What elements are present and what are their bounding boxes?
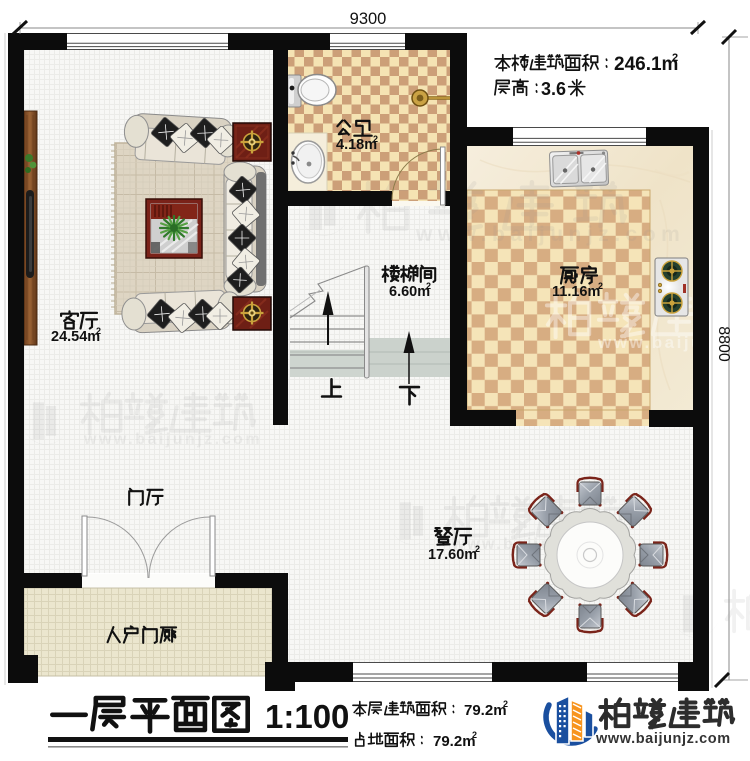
svg-text:2: 2 — [598, 281, 603, 291]
svg-text:8800: 8800 — [715, 326, 732, 362]
svg-text:6.60m: 6.60m — [389, 284, 430, 300]
svg-text:1:100: 1:100 — [265, 698, 349, 735]
svg-text:www.baijunjz.com: www.baijunjz.com — [595, 731, 731, 747]
svg-text:9300: 9300 — [350, 10, 387, 28]
svg-text:3.6: 3.6 — [541, 79, 566, 99]
svg-text:2: 2 — [426, 281, 431, 291]
svg-text:www.baijunjz.com: www.baijunjz.com — [83, 431, 262, 448]
svg-text:24.54m: 24.54m — [51, 329, 100, 345]
svg-text:2: 2 — [475, 544, 480, 554]
svg-text:2: 2 — [503, 699, 508, 709]
svg-text:79.2m: 79.2m — [464, 702, 507, 719]
svg-text:246.1m: 246.1m — [614, 54, 678, 75]
svg-text:2: 2 — [672, 52, 678, 64]
svg-text:2: 2 — [373, 134, 378, 144]
svg-text:4.18m: 4.18m — [336, 137, 377, 153]
svg-text:2: 2 — [472, 730, 477, 740]
svg-text:79.2m: 79.2m — [433, 733, 476, 750]
svg-text:2: 2 — [96, 326, 101, 336]
svg-text:11.16m: 11.16m — [552, 284, 600, 300]
svg-text:17.60m: 17.60m — [428, 547, 477, 563]
